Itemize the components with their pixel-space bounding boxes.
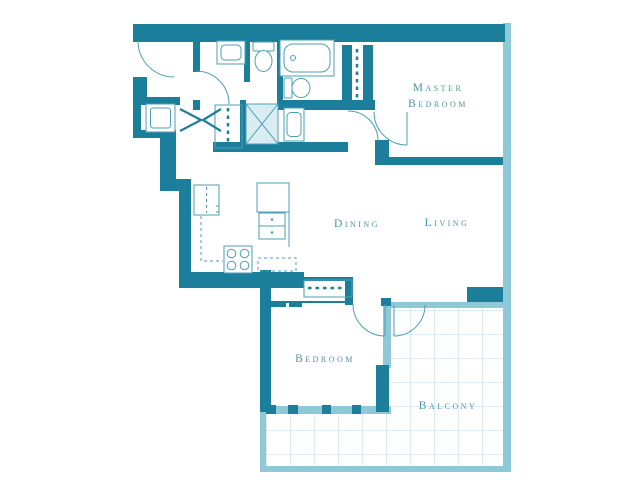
serving-counter-dashed — [258, 258, 296, 271]
bedroom-balcony-glass — [383, 300, 391, 368]
bifold-door-arrow-right — [180, 109, 201, 131]
master-bedroom-label-line1: Master — [413, 82, 464, 94]
master-bedroom-label-line2: Bedroom — [408, 98, 468, 110]
balcony-top-edge — [391, 302, 503, 308]
dining-label: Dining — [334, 218, 380, 230]
toilet-2 — [284, 78, 310, 98]
bathroom-door-arc — [196, 71, 229, 104]
living-label: Living — [425, 217, 470, 229]
closets — [180, 49, 357, 297]
balcony-left-edge — [260, 412, 266, 468]
kitchen-fixtures — [194, 183, 296, 273]
right-window-wall — [503, 23, 511, 472]
refrigerator — [194, 185, 219, 215]
kitchen-counter-dashed — [201, 216, 223, 261]
bifold-door-arrow-left — [203, 109, 221, 131]
entry-door-arc — [138, 41, 174, 77]
bedroom-door-arc — [353, 304, 385, 336]
shower — [246, 104, 278, 144]
bathtub — [280, 40, 334, 76]
balcony-bottom-edge — [260, 466, 509, 472]
floor-plan: Master Bedroom Dining Living Bedroom Bal… — [0, 0, 640, 480]
wall-oven-stack — [259, 213, 285, 239]
bedroom-label: Bedroom — [295, 353, 355, 365]
washer — [146, 104, 175, 132]
balcony-label: Balcony — [419, 400, 478, 412]
hall-door-arc — [348, 111, 378, 141]
stove — [224, 246, 252, 273]
floor-plan-page: Master Bedroom Dining Living Bedroom Bal… — [0, 0, 640, 480]
vanity-sink — [217, 41, 245, 64]
toilet — [253, 42, 274, 72]
vanity-sink-2 — [284, 108, 304, 141]
